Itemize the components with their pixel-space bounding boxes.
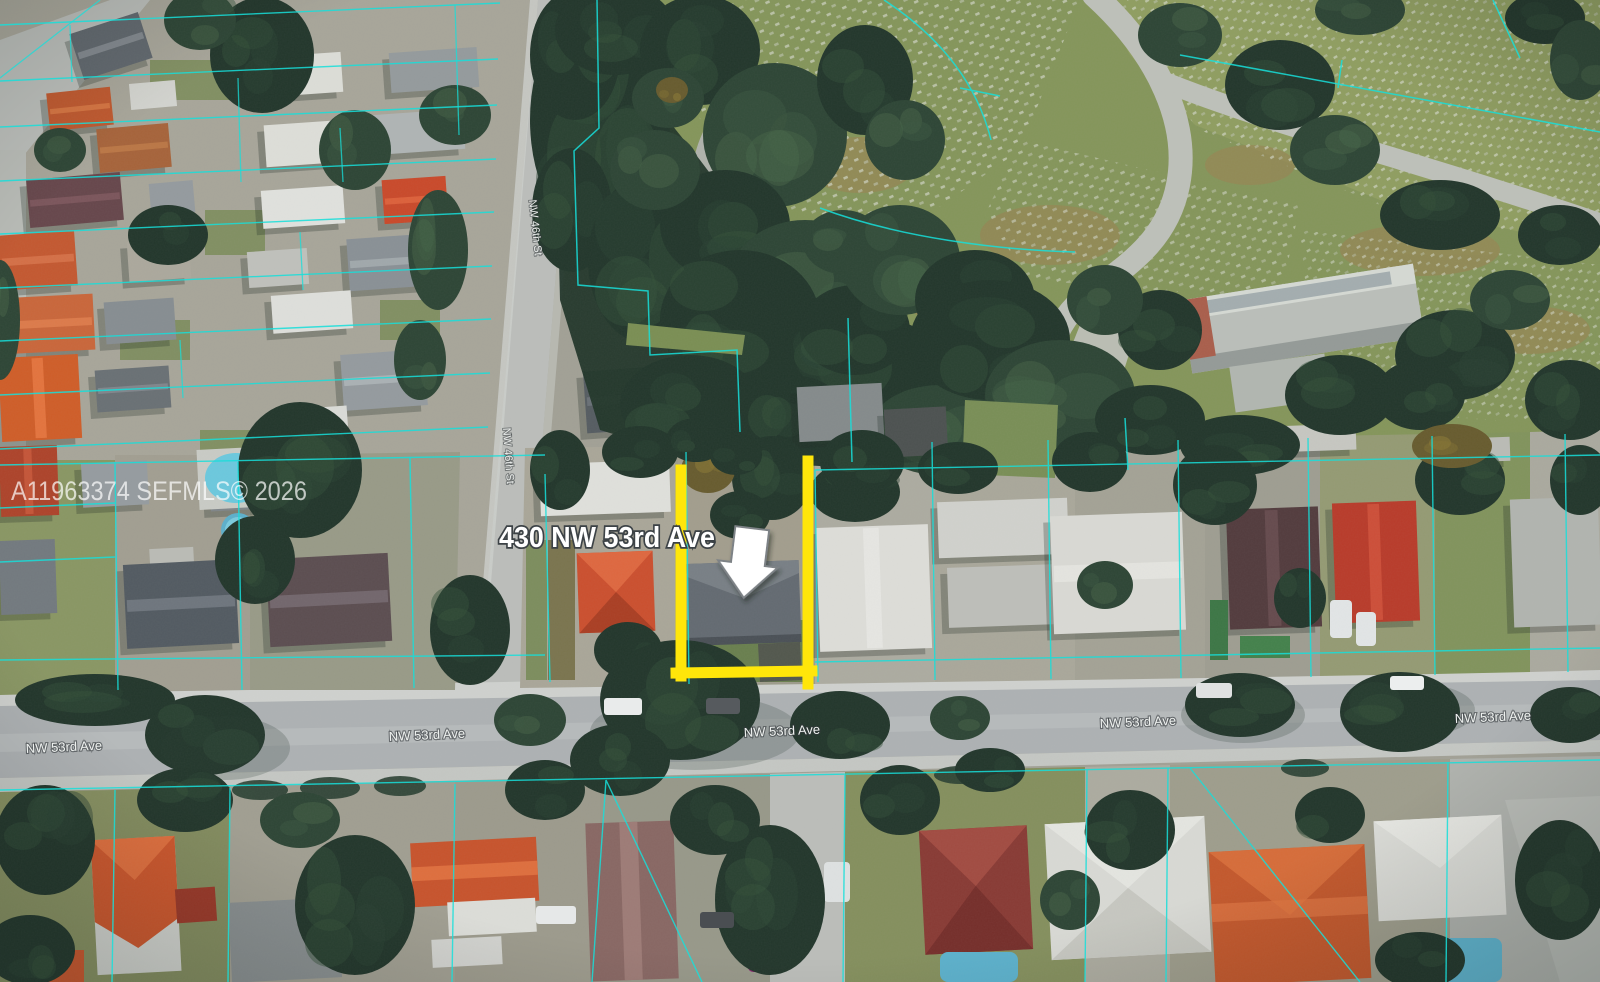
svg-text:A11963374 SEFMLS© 2026: A11963374 SEFMLS© 2026 <box>11 476 307 506</box>
svg-text:430 NW 53rd Ave: 430 NW 53rd Ave <box>499 522 715 554</box>
